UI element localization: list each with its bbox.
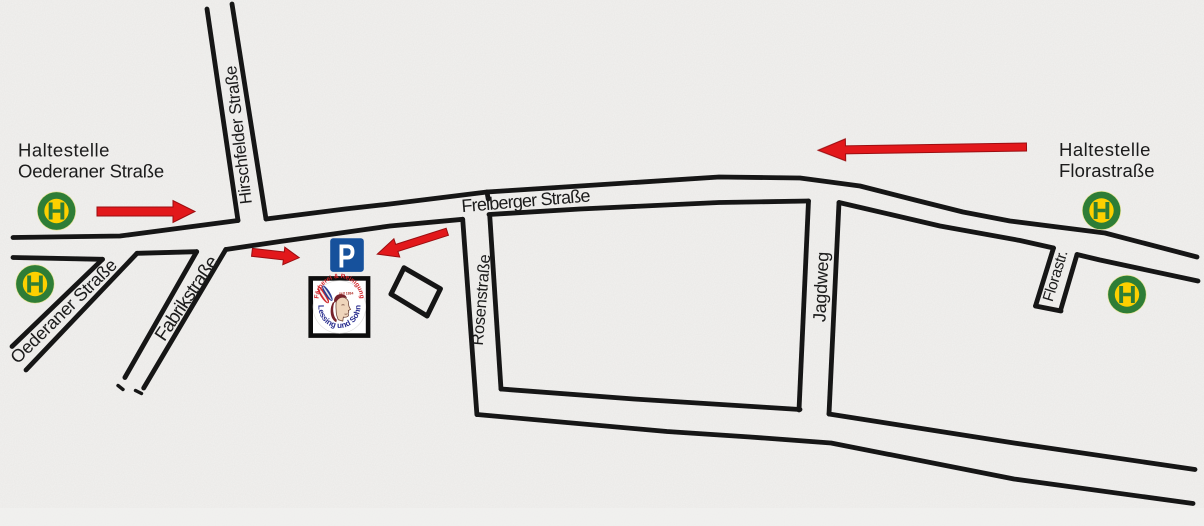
svg-text:Jagdweg: Jagdweg	[809, 252, 832, 323]
svg-text:seit 1884: seit 1884	[339, 292, 353, 296]
svg-text:Haltestelle: Haltestelle	[18, 140, 110, 161]
svg-text:Oederaner Straße: Oederaner Straße	[18, 160, 164, 181]
svg-text:Haltestelle: Haltestelle	[1059, 139, 1151, 160]
svg-text:P: P	[338, 239, 356, 275]
svg-text:Florastraße: Florastraße	[1059, 160, 1155, 181]
